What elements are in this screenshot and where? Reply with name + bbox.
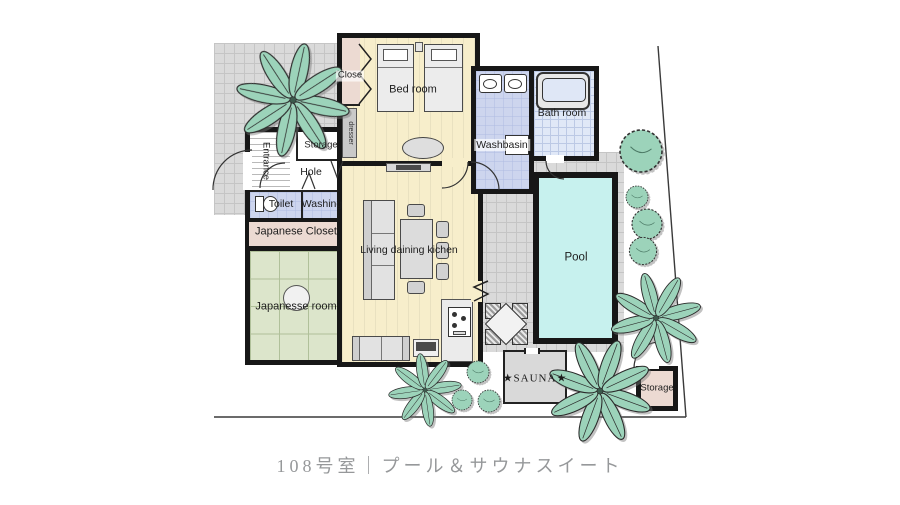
label-outdoor-storage: Storage [638, 384, 675, 395]
bush-icon [467, 361, 489, 383]
palm-tree-icon [384, 349, 467, 432]
bush-icon [452, 390, 472, 410]
label-bedroom: Bed room [387, 84, 439, 97]
floor-plan: Close Bed room dresser Washbasin Bath ro… [0, 0, 900, 505]
plan-caption: 108号室｜プール＆サウナスイート [0, 452, 900, 478]
label-washbasin: Washbasin [474, 139, 530, 151]
palm-tree-icon [225, 32, 361, 168]
label-toilet: Toilet [267, 198, 296, 210]
bush-icon [478, 390, 500, 412]
bush-icon [626, 186, 648, 208]
label-japanese-room: Japanesse room [253, 301, 338, 314]
label-inner-storage: Storage [302, 141, 339, 152]
label-dresser: dresser [344, 121, 356, 144]
label-washing: Washing [300, 198, 344, 210]
label-pool: Pool [562, 251, 589, 264]
zigzag-doors [359, 44, 488, 301]
label-japanese-closet: Japanese Closet [253, 226, 339, 239]
label-living: Living daining kichen [358, 244, 459, 256]
label-entrance: Entrance [258, 142, 273, 180]
label-close: Close [336, 71, 364, 82]
bush-icon [620, 130, 662, 172]
door-arcs [213, 150, 660, 368]
label-bathroom: Bath room [536, 107, 588, 119]
bush-icon [629, 237, 656, 264]
bush-icon [632, 209, 662, 239]
label-sauna: ★SAUNA★ [501, 373, 570, 386]
label-hole: Hole [298, 166, 324, 178]
plants [225, 32, 712, 459]
